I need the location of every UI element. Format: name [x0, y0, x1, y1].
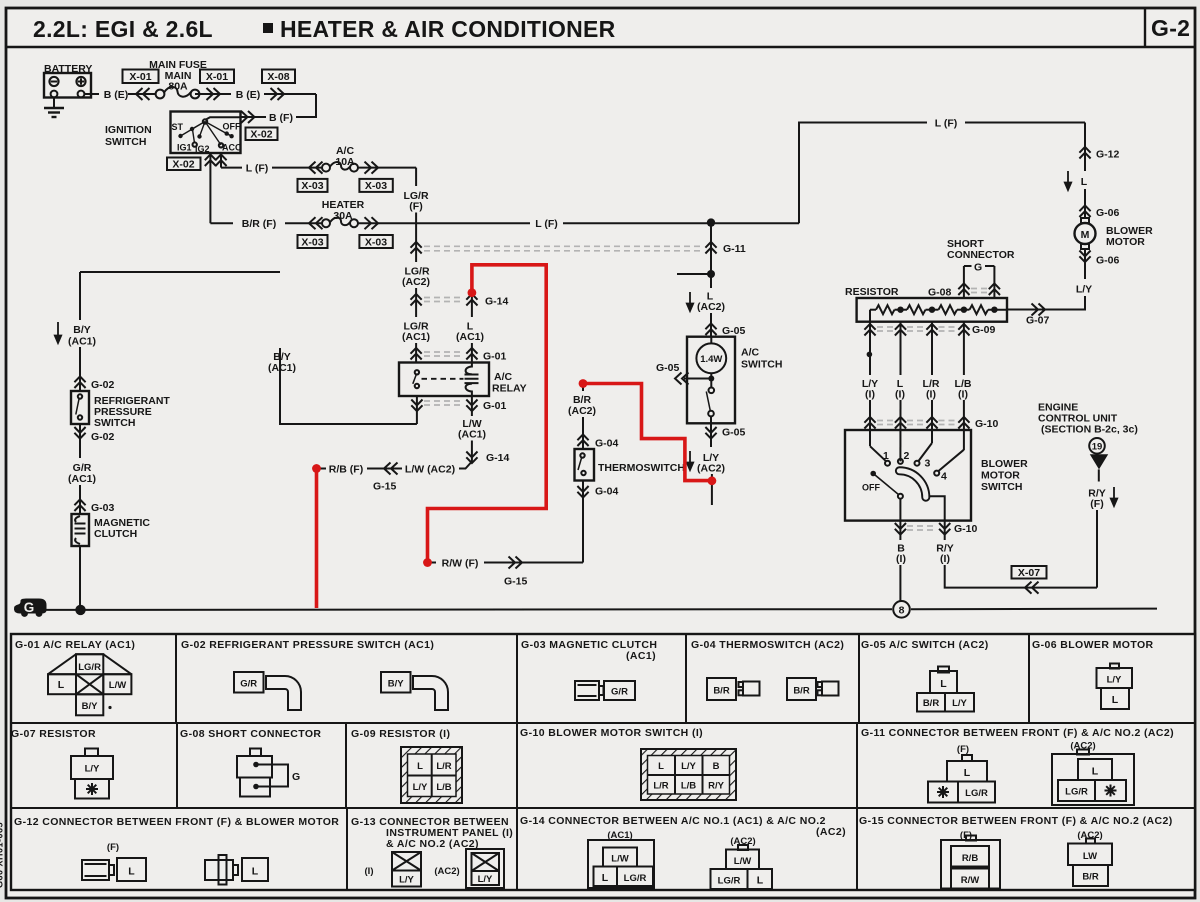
- svg-text:R/B (F): R/B (F): [329, 464, 363, 476]
- svg-text:G-02: G-02: [91, 431, 115, 443]
- svg-text:IGNITION: IGNITION: [105, 124, 152, 136]
- svg-text:(AC2): (AC2): [568, 405, 596, 417]
- svg-text:X-07: X-07: [1018, 567, 1040, 579]
- svg-text:LG/R: LG/R: [965, 788, 988, 799]
- svg-text:(I): (I): [926, 389, 936, 401]
- svg-text:B/Y: B/Y: [82, 701, 99, 712]
- svg-text:4: 4: [941, 471, 947, 483]
- svg-text:L (F): L (F): [246, 163, 269, 175]
- svg-text:(AC2): (AC2): [816, 826, 846, 838]
- svg-text:(AC1): (AC1): [68, 473, 96, 485]
- svg-text:L/W: L/W: [734, 856, 751, 867]
- svg-text:L/Y: L/Y: [85, 764, 100, 775]
- svg-text:IG1: IG1: [177, 143, 192, 153]
- svg-text:G-11: G-11: [723, 243, 746, 255]
- svg-text:L/Y: L/Y: [413, 782, 428, 793]
- svg-text:G-08 SHORT CONNECTOR: G-08 SHORT CONNECTOR: [180, 728, 321, 740]
- svg-text:X-02: X-02: [172, 159, 194, 171]
- svg-text:2: 2: [904, 450, 910, 462]
- svg-text:X-08: X-08: [267, 71, 289, 83]
- svg-text:X-03: X-03: [365, 180, 387, 192]
- svg-text:19: 19: [1092, 442, 1103, 453]
- svg-text:B/Y: B/Y: [73, 324, 91, 336]
- svg-text:30A: 30A: [333, 210, 353, 222]
- svg-text:LG/R: LG/R: [78, 662, 101, 673]
- svg-text:G-12: G-12: [1096, 149, 1120, 161]
- svg-text:G-06 BLOWER MOTOR: G-06 BLOWER MOTOR: [1032, 639, 1154, 651]
- svg-text:G: G: [974, 262, 982, 274]
- svg-text:G-10: G-10: [954, 523, 978, 535]
- svg-text:G/R: G/R: [240, 679, 257, 690]
- svg-text:G-2: G-2: [1151, 15, 1190, 41]
- svg-text:CLUTCH: CLUTCH: [94, 528, 137, 540]
- svg-text:G-04: G-04: [595, 486, 619, 498]
- svg-text:G-09: G-09: [972, 324, 996, 336]
- svg-text:(F): (F): [1090, 498, 1103, 510]
- svg-text:L: L: [128, 866, 135, 878]
- svg-text:L/B: L/B: [681, 781, 696, 792]
- svg-text:SWITCH: SWITCH: [741, 359, 782, 371]
- svg-text:(F): (F): [957, 744, 969, 755]
- svg-text:X-03: X-03: [301, 236, 323, 248]
- svg-text:LW: LW: [1083, 851, 1097, 862]
- svg-text:(AC1): (AC1): [402, 331, 430, 343]
- svg-text:L/Y: L/Y: [952, 698, 967, 709]
- svg-text:L/Y: L/Y: [1107, 675, 1122, 686]
- svg-text:(SECTION B-2c, 3c): (SECTION B-2c, 3c): [1041, 424, 1138, 436]
- svg-text:X-01: X-01: [129, 71, 151, 83]
- svg-text:L: L: [252, 866, 259, 878]
- svg-text:G-05: G-05: [722, 427, 746, 439]
- svg-text:(AC1): (AC1): [268, 362, 296, 374]
- svg-text:G-05: G-05: [722, 325, 746, 337]
- svg-text:B/R: B/R: [1082, 872, 1099, 883]
- svg-text:(F): (F): [409, 201, 422, 213]
- svg-text:G-05: G-05: [656, 362, 680, 374]
- svg-text:G-11 CONNECTOR BETWEEN FRONT (: G-11 CONNECTOR BETWEEN FRONT (F) & A/C N…: [861, 727, 1174, 739]
- svg-text:G-01: G-01: [483, 400, 507, 412]
- svg-text:(AC2): (AC2): [434, 866, 459, 877]
- svg-text:G: G: [24, 600, 35, 615]
- svg-text:G-09 RESISTOR (I): G-09 RESISTOR (I): [351, 728, 450, 740]
- svg-text:L/W: L/W: [611, 854, 628, 865]
- svg-text:L/Y: L/Y: [399, 875, 414, 886]
- svg-text:L: L: [1081, 176, 1088, 188]
- svg-text:B (E): B (E): [104, 89, 129, 101]
- svg-text:X-01: X-01: [206, 71, 228, 83]
- svg-text:HEATER & AIR CONDITIONER: HEATER & AIR CONDITIONER: [280, 16, 616, 42]
- svg-text:(F): (F): [107, 842, 119, 853]
- svg-text:(I): (I): [895, 389, 905, 401]
- svg-text:OFF: OFF: [223, 122, 241, 132]
- svg-text:X-02: X-02: [250, 129, 272, 141]
- svg-text:R/Y: R/Y: [708, 781, 725, 792]
- svg-text:(AC1): (AC1): [626, 650, 656, 662]
- svg-text:G-15: G-15: [504, 576, 528, 588]
- svg-text:G-02: G-02: [91, 379, 115, 391]
- svg-text:G-04: G-04: [595, 438, 619, 450]
- svg-text:B/R (F): B/R (F): [242, 218, 276, 230]
- svg-text:LG/R: LG/R: [718, 876, 741, 887]
- svg-text:G-10 BLOWER MOTOR SWITCH (I): G-10 BLOWER MOTOR SWITCH (I): [520, 727, 703, 739]
- svg-text:G-12 CONNECTOR BETWEEN FRONT (: G-12 CONNECTOR BETWEEN FRONT (F) & BLOWE…: [14, 816, 339, 828]
- svg-text:(AC1): (AC1): [68, 336, 96, 348]
- svg-text:M: M: [1081, 229, 1090, 241]
- svg-text:A/C: A/C: [494, 371, 513, 383]
- svg-text:B/R: B/R: [713, 686, 730, 697]
- svg-text:(I): (I): [958, 389, 968, 401]
- svg-text:G-05 A/C SWITCH (AC2): G-05 A/C SWITCH (AC2): [861, 639, 989, 651]
- svg-text:G-03: G-03: [91, 502, 115, 514]
- svg-text:L: L: [602, 872, 609, 884]
- svg-text:LG/R: LG/R: [624, 873, 647, 884]
- svg-text:R/W (F): R/W (F): [442, 558, 479, 570]
- svg-text:A/C: A/C: [741, 347, 760, 359]
- svg-text:OFF: OFF: [862, 483, 880, 493]
- svg-text:G-01: G-01: [483, 351, 507, 363]
- svg-text:IG2: IG2: [195, 144, 210, 154]
- svg-text:L/W: L/W: [109, 680, 126, 691]
- svg-text:L: L: [1112, 694, 1119, 706]
- svg-text:G-02 REFRIGERANT PRESSURE SWIT: G-02 REFRIGERANT PRESSURE SWITCH (AC1): [181, 639, 434, 651]
- svg-text:(AC2): (AC2): [697, 463, 725, 475]
- svg-text:ST: ST: [172, 122, 184, 132]
- svg-text:L/R: L/R: [653, 781, 668, 792]
- svg-text:G-06: G-06: [1096, 207, 1120, 219]
- svg-text:G-01 A/C RELAY (AC1): G-01 A/C RELAY (AC1): [15, 639, 135, 651]
- svg-text:G: G: [292, 771, 300, 783]
- svg-text:G/R: G/R: [611, 687, 628, 698]
- svg-text:L/R: L/R: [436, 761, 451, 772]
- svg-text:G-15: G-15: [373, 481, 397, 493]
- svg-text:L/Y: L/Y: [478, 874, 493, 885]
- svg-text:G-07: G-07: [1026, 315, 1050, 327]
- svg-text:G-08: G-08: [928, 287, 952, 299]
- svg-text:X-03: X-03: [301, 180, 323, 192]
- svg-text:8: 8: [899, 605, 905, 617]
- svg-text:(AC1): (AC1): [456, 331, 484, 343]
- svg-text:SWITCH: SWITCH: [94, 417, 135, 429]
- svg-text:SWITCH: SWITCH: [105, 136, 146, 148]
- svg-text:L: L: [940, 678, 947, 690]
- svg-text:L: L: [964, 767, 971, 779]
- svg-text:(I): (I): [865, 389, 875, 401]
- svg-text:RELAY: RELAY: [492, 383, 527, 395]
- svg-text:L: L: [1092, 766, 1099, 778]
- svg-text:(I): (I): [896, 553, 906, 565]
- svg-text:L: L: [58, 679, 65, 691]
- svg-text:(I): (I): [365, 866, 374, 877]
- svg-text:10A: 10A: [335, 156, 355, 168]
- svg-text:LG/R: LG/R: [1065, 787, 1088, 798]
- svg-text:G-07 RESISTOR: G-07 RESISTOR: [11, 728, 96, 740]
- svg-text:THERMOSWITCH: THERMOSWITCH: [598, 462, 685, 474]
- svg-text:3: 3: [925, 458, 931, 470]
- svg-text:BLOWER: BLOWER: [981, 458, 1028, 470]
- svg-text:SWITCH: SWITCH: [981, 481, 1022, 493]
- svg-text:L: L: [658, 761, 664, 772]
- svg-text:ACC: ACC: [222, 143, 242, 153]
- svg-text:R/W: R/W: [961, 875, 980, 886]
- svg-text:G-14: G-14: [485, 296, 509, 308]
- svg-text:G60 XH01-065: G60 XH01-065: [0, 822, 5, 888]
- svg-text:G-14: G-14: [486, 452, 510, 464]
- svg-text:1.4W: 1.4W: [700, 354, 722, 365]
- svg-text:L/W (AC2): L/W (AC2): [405, 464, 455, 476]
- svg-text:RESISTOR: RESISTOR: [845, 286, 899, 298]
- svg-text:80A: 80A: [168, 81, 188, 93]
- svg-text:1: 1: [883, 450, 889, 462]
- svg-text:L/Y: L/Y: [1076, 284, 1092, 296]
- svg-text:CONNECTOR: CONNECTOR: [947, 249, 1015, 261]
- svg-text:G-06: G-06: [1096, 255, 1120, 267]
- svg-text:2.2L: EGI & 2.6L: 2.2L: EGI & 2.6L: [33, 16, 213, 42]
- svg-text:(AC2): (AC2): [697, 301, 725, 313]
- svg-text:G-10: G-10: [975, 418, 999, 430]
- svg-text:L: L: [757, 875, 764, 887]
- svg-text:B: B: [713, 761, 720, 772]
- svg-text:MOTOR: MOTOR: [1106, 236, 1145, 248]
- svg-text:(AC1): (AC1): [458, 429, 486, 441]
- svg-text:B/R: B/R: [793, 686, 810, 697]
- svg-text:L (F): L (F): [535, 218, 558, 230]
- svg-text:MOTOR: MOTOR: [981, 470, 1020, 482]
- svg-text:G-04 THERMOSWITCH (AC2): G-04 THERMOSWITCH (AC2): [691, 639, 844, 651]
- svg-text:B/Y: B/Y: [388, 679, 405, 690]
- svg-text:G-14 CONNECTOR BETWEEN A/C NO.: G-14 CONNECTOR BETWEEN A/C NO.1 (AC1) & …: [520, 815, 826, 827]
- svg-text:L (F): L (F): [935, 118, 958, 130]
- svg-text:(AC2): (AC2): [402, 276, 430, 288]
- svg-text:L: L: [417, 761, 423, 772]
- svg-text:B (F): B (F): [269, 112, 293, 124]
- svg-text:B (E): B (E): [236, 89, 261, 101]
- svg-text:G-15 CONNECTOR BETWEEN FRONT (: G-15 CONNECTOR BETWEEN FRONT (F) & A/C N…: [859, 815, 1173, 827]
- svg-text:L/Y: L/Y: [681, 761, 696, 772]
- svg-text:R/B: R/B: [962, 853, 979, 864]
- svg-text:X-03: X-03: [365, 236, 387, 248]
- svg-text:(I): (I): [940, 553, 950, 565]
- svg-text:& A/C NO.2 (AC2): & A/C NO.2 (AC2): [386, 838, 479, 850]
- svg-text:B/R: B/R: [923, 698, 940, 709]
- svg-text:L/B: L/B: [436, 782, 451, 793]
